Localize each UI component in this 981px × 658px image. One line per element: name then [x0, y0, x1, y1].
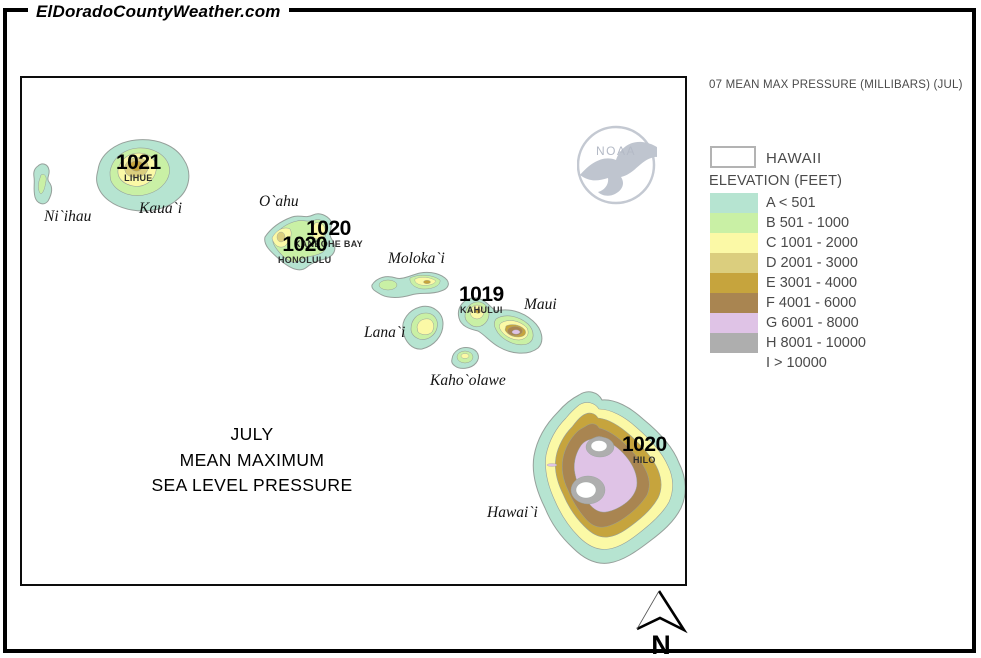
hawaii-maunaloa-elev-i	[576, 482, 596, 498]
legend-row-g: G 6001 - 8000	[710, 313, 866, 333]
legend-row-b: B 501 - 1000	[710, 213, 866, 233]
label-oahu: O`ahu	[259, 193, 299, 211]
legend-row-f: F 4001 - 6000	[710, 293, 866, 313]
legend-label-d: D 2001 - 3000	[766, 253, 858, 273]
hawaii-region-label: HAWAII	[766, 150, 822, 167]
legend-swatch-i	[710, 353, 758, 373]
station-honolulu-value: 1020	[278, 234, 331, 255]
legend-label-b: B 501 - 1000	[766, 213, 849, 233]
weather-map-page: { "site": { "title": "ElDoradoCountyWeat…	[0, 0, 981, 658]
kahoolawe-elev-c	[461, 354, 469, 359]
legend-swatch-h	[710, 333, 758, 353]
legend-row-c: C 1001 - 2000	[710, 233, 866, 253]
noaa-logo: NOAA	[577, 122, 657, 208]
station-lihue-name: LIHUE	[116, 174, 161, 183]
legend-swatch-d	[710, 253, 758, 273]
island-kahoolawe	[452, 348, 479, 369]
island-hawaii	[533, 392, 685, 564]
legend-header: 07 MEAN MAX PRESSURE (MILLIBARS) (JUL)	[709, 79, 971, 91]
label-lanai: Lana`i	[364, 324, 405, 342]
hawaii-region-swatch	[710, 146, 756, 168]
map-title-line-3: SEA LEVEL PRESSURE	[102, 473, 402, 499]
station-lihue: 1021 LIHUE	[116, 152, 161, 183]
legend-row-h: H 8001 - 10000	[710, 333, 866, 353]
north-arrow-label: N	[651, 630, 671, 658]
label-molokai: Moloka`i	[388, 250, 445, 268]
map-panel: NOAA Ni`ihau Kaua`i O`ahu Moloka`i Lana`…	[20, 76, 687, 586]
map-title: JULY MEAN MAXIMUM SEA LEVEL PRESSURE	[102, 422, 402, 499]
island-niihau	[34, 164, 52, 204]
legend-label-c: C 1001 - 2000	[766, 233, 858, 253]
label-maui: Maui	[524, 296, 557, 314]
legend-swatch-e	[710, 273, 758, 293]
legend-row-i: I > 10000	[710, 353, 866, 373]
legend-swatch-f	[710, 293, 758, 313]
legend-row-e: E 3001 - 4000	[710, 273, 866, 293]
legend-label-e: E 3001 - 4000	[766, 273, 857, 293]
north-arrow-shape	[637, 591, 684, 630]
label-kauai: Kaua`i	[139, 200, 182, 218]
elevation-legend-title: ELEVATION (FEET)	[709, 173, 842, 189]
legend-swatch-a	[710, 193, 758, 213]
station-honolulu-name: HONOLULU	[278, 256, 331, 265]
molokai-elev-e	[424, 280, 431, 284]
legend-swatch-b	[710, 213, 758, 233]
station-hilo-value: 1020	[622, 434, 667, 455]
legend-label-f: F 4001 - 6000	[766, 293, 856, 313]
station-kahului-value: 1019	[459, 284, 504, 305]
map-title-line-2: MEAN MAXIMUM	[102, 448, 402, 474]
legend-label-h: H 8001 - 10000	[766, 333, 866, 353]
island-lanai	[403, 306, 443, 349]
label-hawaii: Hawai`i	[487, 504, 538, 522]
hawaii-west-elev-g-patch	[547, 464, 557, 467]
station-hilo: 1020 HILO	[622, 434, 667, 465]
noaa-logo-text: NOAA	[596, 144, 636, 158]
label-kahoolawe: Kaho`olawe	[430, 372, 506, 390]
legend-label-i: I > 10000	[766, 353, 827, 373]
legend-label-a: A < 501	[766, 193, 816, 213]
legend-swatch-g	[710, 313, 758, 333]
station-kahului: 1019 KAHULUI	[459, 284, 504, 315]
island-molokai	[372, 272, 449, 297]
legend-row-d: D 2001 - 3000	[710, 253, 866, 273]
label-niihau: Ni`ihau	[44, 208, 91, 226]
maui-east-elev-g	[512, 330, 520, 334]
legend-swatch-c	[710, 233, 758, 253]
site-title: ElDoradoCountyWeather.com	[28, 0, 289, 24]
map-title-line-1: JULY	[102, 422, 402, 448]
station-kahului-name: KAHULUI	[459, 306, 504, 315]
station-lihue-value: 1021	[116, 152, 161, 173]
station-honolulu: 1020 HONOLULU	[278, 234, 331, 265]
hawaii-maunakea-elev-i	[591, 441, 607, 452]
station-hilo-name: HILO	[622, 456, 667, 465]
molokai-elev-b-west	[379, 280, 397, 290]
north-arrow: N	[618, 586, 708, 658]
legend-label-g: G 6001 - 8000	[766, 313, 859, 333]
elevation-legend: A < 501 B 501 - 1000 C 1001 - 2000 D 200…	[710, 193, 866, 373]
legend-row-a: A < 501	[710, 193, 866, 213]
